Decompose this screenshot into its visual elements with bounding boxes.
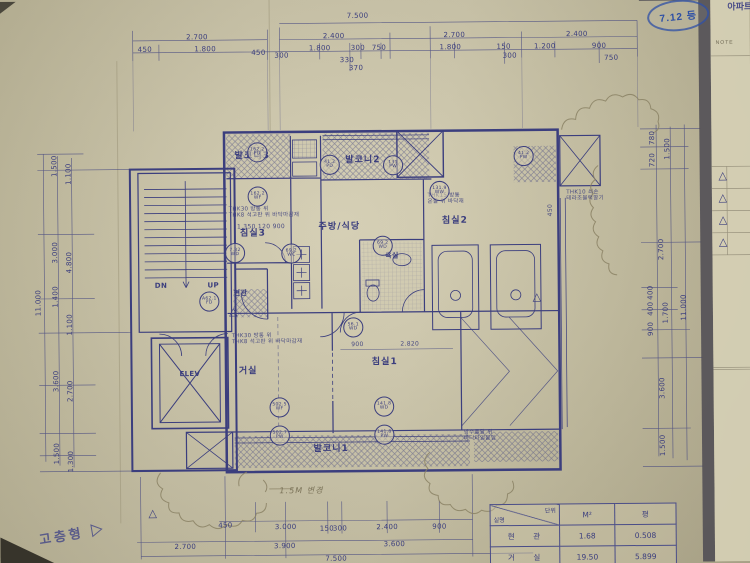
- dimension-label: 1.800: [194, 45, 216, 53]
- interior-dimension-label: 450: [548, 204, 555, 216]
- dimension-label: 1.200: [534, 42, 556, 50]
- revision-marker: △: [718, 170, 727, 183]
- dimension-label: 3.000: [275, 523, 297, 531]
- dimension-label: 1.800: [439, 43, 461, 51]
- room-label: 침실1: [372, 357, 398, 368]
- dimension-label: 1.500: [53, 443, 61, 465]
- area-table-header-row: 단위 실명 M² 평: [490, 503, 676, 526]
- dimension-label: 2.700: [443, 31, 465, 39]
- margin-note-text: NOTE: [716, 40, 734, 46]
- dimension-label: 2.700: [186, 33, 208, 41]
- fixture-tag: 131.9 WW: [429, 181, 449, 201]
- dimension-label: 1.100: [66, 314, 74, 336]
- dimension-label: 400: [647, 302, 655, 316]
- room-label: 발코니2: [345, 155, 380, 166]
- revision-marker: △: [719, 192, 728, 205]
- revision-marker: △: [719, 214, 728, 227]
- dimension-label: 370: [349, 64, 363, 72]
- fixture-tag: 56.1 WD: [343, 317, 363, 337]
- revision-marker: △: [229, 306, 238, 319]
- floorplan-drawing: [0, 0, 750, 563]
- fixture-tag: A62.1 FD: [199, 291, 219, 311]
- fixture-tag: 41.2 PW: [514, 146, 534, 166]
- col-header-m2: M²: [559, 504, 614, 526]
- dimension-label: 450: [251, 49, 265, 57]
- diag-label-room: 실명: [494, 515, 505, 524]
- dimension-label: 450: [138, 46, 152, 54]
- finish-note: 방수몰탈 위 바닥타일붙임: [464, 429, 496, 442]
- fixture-tag: 7.32 WD: [225, 243, 245, 263]
- dimension-label: 330: [340, 56, 354, 64]
- corner-header-text: 아파트: [727, 0, 750, 13]
- blueprint-photo: 7.5002.7002.4002.7002.4004501.8004503001…: [0, 0, 750, 563]
- room-label: 침실3: [240, 229, 266, 240]
- dimension-label: 300: [351, 44, 365, 52]
- dimension-label: 3.600: [384, 540, 406, 548]
- room-label: 거실: [239, 366, 258, 377]
- row-m2: 19.50: [560, 546, 615, 563]
- dimension-label: 450: [218, 521, 232, 529]
- dimension-label: 2.700: [657, 238, 665, 260]
- table-row: 현 관 1.68 0.508: [490, 524, 676, 547]
- dimension-label: 780: [648, 131, 656, 145]
- fixture-tag: 141.8 PW: [374, 425, 394, 445]
- dimension-label: 900: [432, 523, 446, 531]
- dimension-label: 1.800: [309, 44, 331, 52]
- fixture-tag: 69.2 WC: [281, 243, 301, 263]
- dimension-label: 2.400: [566, 30, 588, 38]
- dimension-label: 3.600: [658, 377, 666, 399]
- dimension-label: 400: [646, 285, 654, 299]
- dimension-label: 3.900: [274, 542, 296, 550]
- fixture-tag: 41.2 PD: [320, 155, 340, 175]
- dimension-label: 1.500: [50, 155, 58, 177]
- room-label: ELEV: [179, 370, 200, 378]
- stamp-text: 7.12 등: [659, 6, 698, 25]
- finish-note: THK30 방통 위 THK8 석고판 위 바닥마감재: [232, 333, 303, 346]
- area-table-diagonal-cell: 단위 실명: [490, 504, 560, 526]
- dimension-label: 900: [592, 42, 606, 50]
- revision-marker: △: [719, 236, 728, 249]
- dimension-label: 300: [333, 524, 347, 532]
- drawing-sheet: 7.5002.7002.4002.7002.4004501.8004503001…: [0, 0, 750, 563]
- dimension-label: 720: [648, 153, 656, 167]
- room-label: 주방/식당: [318, 222, 360, 233]
- dimension-label: 1.100: [64, 163, 72, 185]
- dimension-label: 1.700: [662, 302, 670, 324]
- dimension-label: 1.300: [67, 451, 75, 473]
- interior-dimension-label: 900: [351, 342, 363, 349]
- dimension-label: 2.700: [66, 380, 74, 402]
- finish-note: THK10 쇠손 테라조블럭깔기: [566, 189, 604, 202]
- row-m2: 1.68: [560, 525, 615, 547]
- dimension-label: 7.500: [347, 12, 369, 20]
- room-label: 발코니1: [314, 444, 349, 455]
- dimension-label: 2.400: [376, 523, 398, 531]
- dimension-label: 150: [496, 43, 510, 51]
- dimension-label: 11.000: [34, 290, 42, 316]
- fixture-tag: 502.5 WF: [269, 397, 289, 417]
- dimension-label: 2.700: [174, 543, 196, 551]
- row-pyeong: 5.899: [615, 545, 676, 563]
- fixture-tag: 502.7 PW: [270, 425, 290, 445]
- dimension-label: 900: [647, 322, 655, 336]
- row-name: 거 실: [490, 546, 560, 563]
- dimension-label: 1.400: [51, 286, 59, 308]
- fixture-tag: 69.2 WD: [373, 236, 393, 256]
- revision-marker: △: [532, 291, 541, 304]
- row-pyeong: 0.508: [615, 524, 676, 546]
- dimension-label: 11.000: [680, 294, 688, 320]
- dimension-label: 750: [604, 54, 618, 62]
- pencil-note: 1.5M 변경: [279, 486, 323, 496]
- dimension-label: 4.800: [65, 252, 73, 274]
- dimension-label: 300: [503, 52, 517, 60]
- area-table: 단위 실명 M² 평 현 관 1.68 0.508 거 실 19.50 5.89…: [490, 502, 678, 563]
- diag-label-unit: 단위: [545, 506, 556, 515]
- dimension-label: 300: [274, 52, 288, 60]
- row-name: 현 관: [490, 525, 560, 547]
- revision-marker: △: [148, 508, 157, 521]
- fixture-tag: 162.2 PD: [247, 142, 267, 162]
- dimension-label: 7.500: [325, 555, 347, 563]
- dimension-label: 2.400: [323, 32, 345, 40]
- dimension-label: 1.500: [663, 138, 671, 160]
- fixture-tag: 131 PW: [383, 155, 403, 175]
- fixture-tag: 162.2 WF: [248, 186, 268, 206]
- interior-dimension-label: 2.820: [400, 341, 419, 348]
- room-label: UP: [207, 281, 219, 289]
- room-label: 현관: [234, 289, 248, 297]
- dimension-label: 3.600: [52, 370, 60, 392]
- room-label: 침실2: [442, 216, 468, 227]
- fixture-tag: 141.8 WD: [374, 396, 394, 416]
- finish-note: THK30 방통 위 THK8 석고판 위 바닥마감재: [229, 206, 300, 219]
- col-header-pyeong: 평: [615, 503, 676, 525]
- dimension-label: 750: [372, 44, 386, 52]
- room-label: DN: [155, 282, 167, 290]
- dimension-label: 1.500: [659, 434, 667, 456]
- dimension-label: 3.000: [51, 242, 59, 264]
- table-row: 거 실 19.50 5.899: [490, 545, 676, 563]
